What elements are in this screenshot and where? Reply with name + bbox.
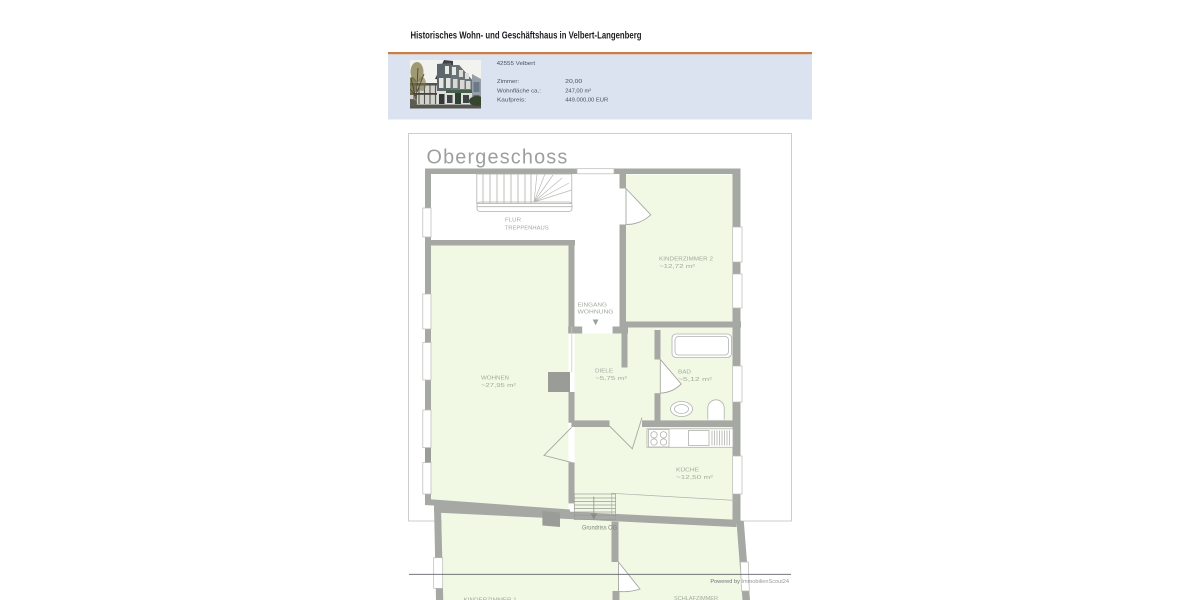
svg-text:WOHNEN: WOHNEN [481, 376, 509, 382]
svg-text:BAD: BAD [678, 370, 691, 376]
svg-text:Wohnfläche ca.:: Wohnfläche ca.: [497, 88, 541, 94]
svg-text:247,00 m²: 247,00 m² [565, 88, 591, 94]
svg-text:~5,12 m²: ~5,12 m² [678, 377, 712, 383]
svg-text:~12,72 m²: ~12,72 m² [659, 264, 695, 270]
svg-text:~5,75 m²: ~5,75 m² [595, 376, 627, 382]
svg-text:Kaufpreis:: Kaufpreis: [497, 98, 526, 104]
svg-text:SCHLAFZIMMER: SCHLAFZIMMER [674, 596, 718, 600]
svg-text:~12,50 m²: ~12,50 m² [676, 475, 713, 481]
svg-text:Obergeschoss: Obergeschoss [427, 147, 569, 169]
svg-text:TREPPENHAUS: TREPPENHAUS [505, 226, 549, 232]
svg-text:42555 Velbert: 42555 Velbert [497, 61, 536, 67]
svg-text:Powered by ImmobilienScout24: Powered by ImmobilienScout24 [710, 579, 789, 585]
svg-text:Zimmer:: Zimmer: [497, 79, 519, 85]
svg-text:449.000,00 EUR: 449.000,00 EUR [565, 98, 608, 104]
svg-text:DIELE: DIELE [595, 369, 613, 375]
svg-text:WOHNUNG: WOHNUNG [578, 310, 614, 316]
svg-text:KÜCHE: KÜCHE [676, 467, 699, 474]
svg-text:KINDERZIMMER 2: KINDERZIMMER 2 [659, 257, 713, 263]
svg-text:EINGANG: EINGANG [578, 303, 608, 309]
svg-text:FLUR: FLUR [505, 218, 521, 224]
svg-text:Grundriss OG: Grundriss OG [582, 525, 617, 532]
svg-text:Historisches Wohn- und Geschäf: Historisches Wohn- und Geschäftshaus in … [411, 31, 642, 42]
svg-text:~27,95 m²: ~27,95 m² [481, 383, 516, 389]
svg-text:20,00: 20,00 [565, 79, 583, 85]
